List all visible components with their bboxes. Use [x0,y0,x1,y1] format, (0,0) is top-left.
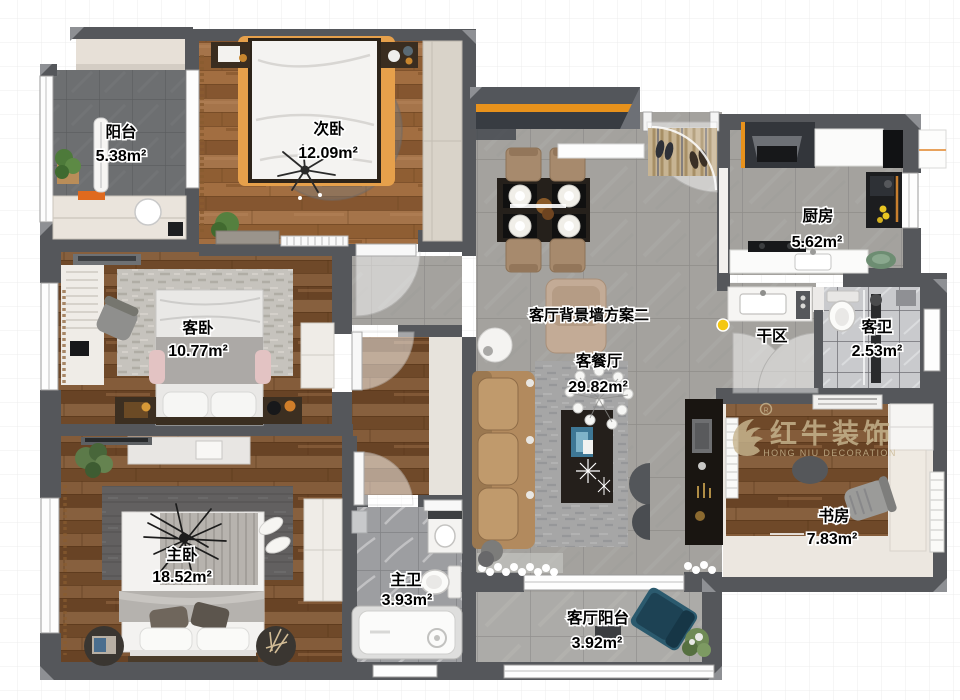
svg-text:5.38m²: 5.38m² [96,148,147,165]
svg-text:主卧: 主卧 [166,545,198,564]
svg-text:书房: 书房 [818,506,849,525]
svg-text:18.52m²: 18.52m² [152,569,212,586]
svg-text:红牛装饰: 红牛装饰 [770,418,894,449]
svg-text:客餐厅: 客餐厅 [576,351,623,370]
svg-text:客厅背景墙方案二: 客厅背景墙方案二 [528,306,649,324]
svg-text:29.82m²: 29.82m² [568,379,628,396]
svg-text:HONG NIU DECORATION: HONG NIU DECORATION [763,448,896,458]
svg-text:2.53m²: 2.53m² [852,343,903,360]
svg-text:次卧: 次卧 [313,119,345,138]
svg-text:7.83m²: 7.83m² [807,531,858,548]
svg-text:12.09m²: 12.09m² [298,145,358,162]
svg-text:厨房: 厨房 [802,206,833,225]
svg-text:10.77m²: 10.77m² [168,343,228,360]
svg-text:客厅阳台: 客厅阳台 [567,608,629,627]
svg-text:主卫: 主卫 [390,570,422,589]
svg-text:客卫: 客卫 [861,317,893,336]
svg-text:客卧: 客卧 [182,318,214,337]
svg-text:3.93m²: 3.93m² [382,592,433,609]
svg-text:R: R [763,408,768,415]
svg-text:3.92m²: 3.92m² [572,635,623,652]
svg-text:阳台: 阳台 [105,122,136,141]
svg-text:干区: 干区 [756,327,788,345]
svg-text:5.62m²: 5.62m² [792,234,843,251]
